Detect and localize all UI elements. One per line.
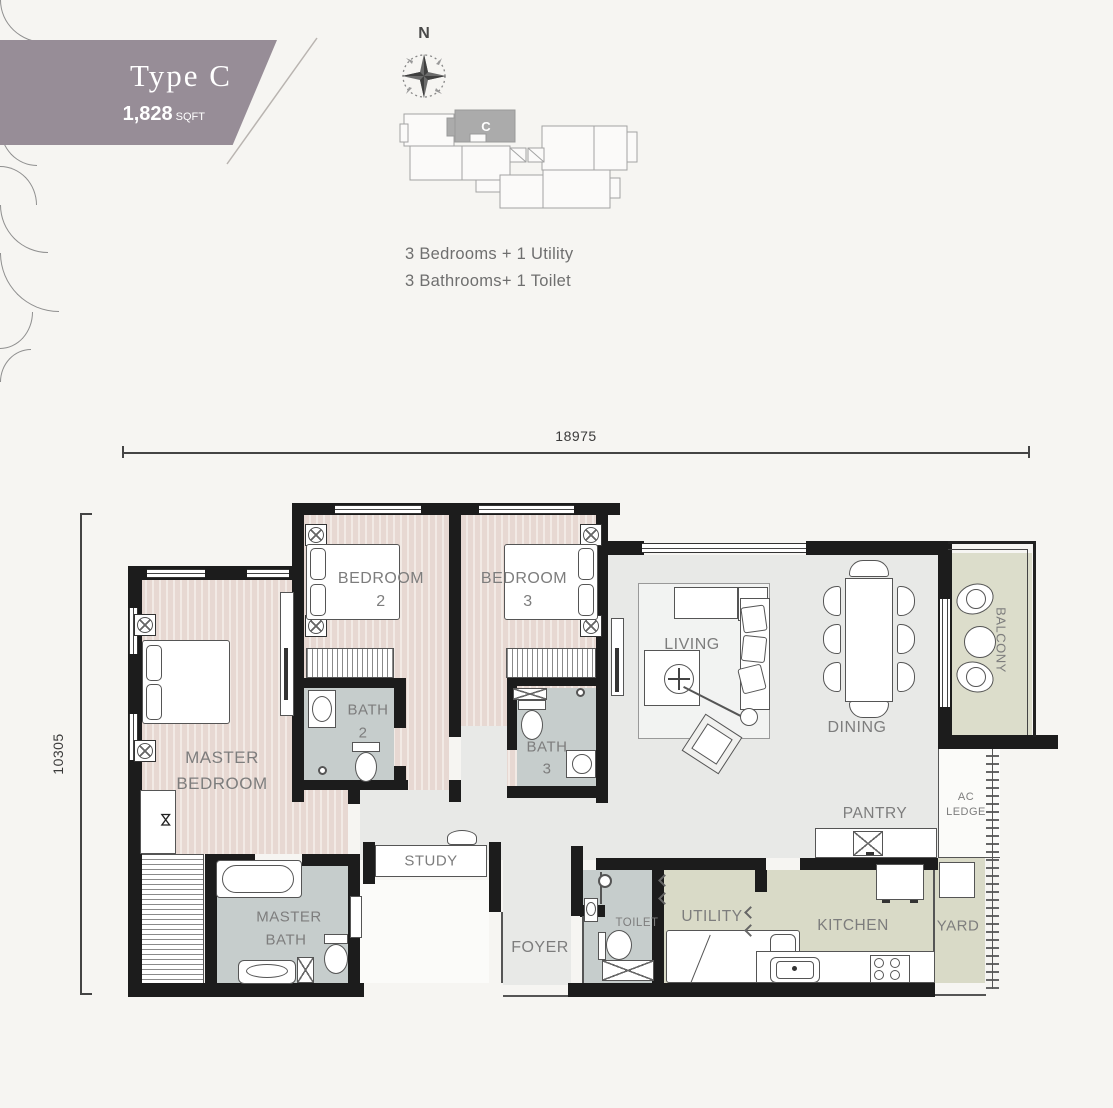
sofa-chaise: [674, 587, 738, 619]
pillow: [310, 548, 326, 580]
downlight-icon: [305, 524, 327, 546]
wall: [489, 842, 501, 912]
bathtub-inner: [222, 865, 294, 893]
louvre-screen-line: [992, 749, 993, 989]
wall: [755, 870, 767, 892]
door-arc-master-bath: [0, 205, 48, 253]
toilet-bowl: [521, 710, 543, 740]
label-ac-ledge: AC: [958, 791, 974, 803]
label-master-bath: MASTER: [256, 909, 322, 926]
vanity-basin: [246, 964, 288, 978]
dimension-line-left: [80, 513, 82, 995]
wall: [449, 780, 461, 802]
dimension-line-top: [122, 452, 1030, 454]
pocket-door: [350, 896, 362, 938]
shower-icon: [598, 874, 612, 888]
tv-icon: [615, 648, 619, 692]
wall: [507, 678, 608, 686]
island-leg: [910, 900, 918, 903]
toilet-tank: [352, 742, 380, 752]
dimension-tick: [80, 513, 92, 515]
label-bedroom2: 2: [376, 593, 385, 611]
planter-inner: [966, 667, 986, 687]
decorative-slash: [215, 36, 325, 168]
burner: [890, 958, 900, 968]
sofa-cushion: [741, 635, 768, 663]
label-yard: YARD: [937, 918, 980, 935]
area-line: 1,828SQFT: [40, 103, 205, 126]
label-bedroom3: 3: [523, 593, 532, 611]
study-chair: [447, 830, 477, 845]
wall: [568, 983, 935, 997]
toilet-tank: [324, 934, 348, 944]
downlight-glyph: [308, 527, 324, 543]
shower-icon: [576, 688, 585, 697]
pillow: [146, 645, 162, 681]
downlight-glyph: [583, 527, 599, 543]
linen-shelf: [513, 688, 547, 700]
shaft-box: [602, 960, 654, 981]
bedroom2-wardrobe: [306, 648, 394, 678]
label-ac-ledge: LEDGE: [946, 806, 986, 818]
shower-icon: [318, 766, 327, 775]
partition-line: [582, 916, 584, 983]
label-kitchen: KITCHEN: [817, 917, 889, 935]
label-bath2: 2: [359, 725, 368, 742]
floor-plan-page: Type C 1,828SQFT N: [0, 0, 1113, 1108]
label-bedroom2: BEDROOM: [338, 570, 424, 588]
area-value: 1,828: [123, 103, 173, 125]
corridor-floor: [461, 726, 507, 798]
type-title: Type C: [40, 58, 232, 94]
wall: [348, 790, 360, 804]
faucet-dot: [866, 852, 874, 855]
door-arc-master-bedroom: [0, 0, 45, 43]
sink-basin: [572, 754, 592, 774]
downlight-icon: [134, 614, 156, 636]
toilet-bowl: [324, 944, 348, 974]
pillow: [146, 684, 162, 720]
master-wardrobe: [140, 854, 204, 986]
void-area: [360, 880, 489, 983]
planter-inner: [966, 589, 986, 609]
side-table-inner: [691, 723, 732, 764]
door-arc-bath3: [0, 166, 37, 205]
kitchen-island: [876, 864, 924, 900]
door-arc-toilet: [0, 349, 31, 382]
sliding-door-line: [947, 599, 948, 707]
dining-chair: [849, 701, 889, 718]
partition-line: [938, 749, 939, 858]
downlight-glyph: [137, 743, 153, 759]
window: [479, 505, 574, 514]
label-pantry: PANTRY: [843, 805, 907, 823]
wall: [128, 983, 364, 997]
label-bath3: BATH: [527, 739, 568, 756]
sink-basin: [312, 696, 332, 722]
label-study: STUDY: [404, 853, 457, 870]
dimension-tick: [1028, 446, 1030, 458]
sliding-door-line: [942, 599, 943, 707]
pillow: [578, 584, 594, 616]
pillow: [310, 584, 326, 616]
window: [247, 569, 289, 578]
wall: [449, 515, 461, 737]
toilet-bowl: [355, 752, 377, 782]
building-key-plan: C: [398, 98, 640, 218]
wall: [363, 842, 375, 884]
wall: [302, 854, 360, 866]
compass-north-label: N: [418, 25, 430, 42]
window: [642, 543, 806, 553]
dimension-height: 10305: [50, 733, 66, 774]
area-unit: SQFT: [176, 111, 205, 123]
sink-basin: [586, 902, 596, 916]
wall: [806, 541, 938, 555]
summary-line-1: 3 Bedrooms + 1 Utility: [405, 245, 573, 264]
partition-line: [503, 995, 568, 997]
door-arc-foyer: [0, 253, 59, 312]
dresser-glyph: ⋈: [157, 812, 175, 828]
label-master-bath: BATH: [266, 932, 307, 949]
window: [335, 505, 421, 514]
tv-icon: [284, 648, 288, 700]
toilet-tank: [518, 700, 546, 710]
label-master-bedroom: MASTER: [185, 748, 259, 768]
key-plan-unit-label: C: [481, 119, 491, 134]
label-dining: DINING: [828, 719, 887, 737]
dimension-tick: [80, 993, 92, 995]
shaft-box: [297, 957, 314, 983]
island-leg: [882, 900, 890, 903]
partition-line: [501, 912, 503, 983]
wall: [938, 735, 1058, 749]
foyer-floor: [503, 858, 571, 985]
dimension-tick: [122, 446, 124, 458]
faucet-dot: [792, 966, 797, 971]
toilet-tank: [598, 932, 606, 960]
partition-line: [935, 994, 986, 996]
burner: [890, 970, 900, 980]
label-bedroom3: BEDROOM: [481, 570, 567, 588]
bedroom3-wardrobe: [506, 648, 596, 678]
downlight-glyph: [308, 618, 324, 634]
label-bath3: 3: [543, 761, 552, 778]
water-heater: [939, 862, 975, 898]
dining-chair: [849, 560, 889, 577]
burner: [874, 958, 884, 968]
sofa-cushion: [740, 604, 767, 633]
summary-line-2: 3 Bathrooms+ 1 Toilet: [405, 272, 571, 291]
wall: [596, 858, 766, 870]
downlight-glyph: [583, 618, 599, 634]
label-master-bedroom: BEDROOM: [176, 774, 267, 794]
label-balcony: BALCONY: [994, 607, 1009, 673]
wall: [608, 541, 644, 555]
key-plan-unit-c: C: [447, 110, 515, 142]
toilet-bowl: [606, 930, 632, 960]
pillow: [578, 548, 594, 580]
wall: [394, 678, 406, 728]
window: [147, 569, 205, 578]
door-arc-kitchen: [0, 312, 33, 349]
label-toilet: TOILET: [615, 917, 658, 929]
label-bath2: BATH: [348, 702, 389, 719]
label-utility: UTILITY: [681, 908, 742, 926]
wall: [304, 780, 408, 790]
dimension-width: 18975: [555, 428, 596, 444]
downlight-icon: [580, 524, 602, 546]
planter: [964, 626, 996, 658]
dining-table: [845, 578, 893, 702]
floor-lamp-head: [740, 708, 758, 726]
wall: [507, 786, 608, 798]
burner: [874, 970, 884, 980]
downlight-icon: [134, 740, 156, 762]
label-foyer: FOYER: [511, 939, 569, 957]
label-living: LIVING: [664, 636, 719, 654]
wall: [304, 678, 396, 688]
downlight-glyph: [137, 617, 153, 633]
compass-icon: N: [396, 14, 454, 110]
floor-lamp-cross: [668, 678, 690, 680]
